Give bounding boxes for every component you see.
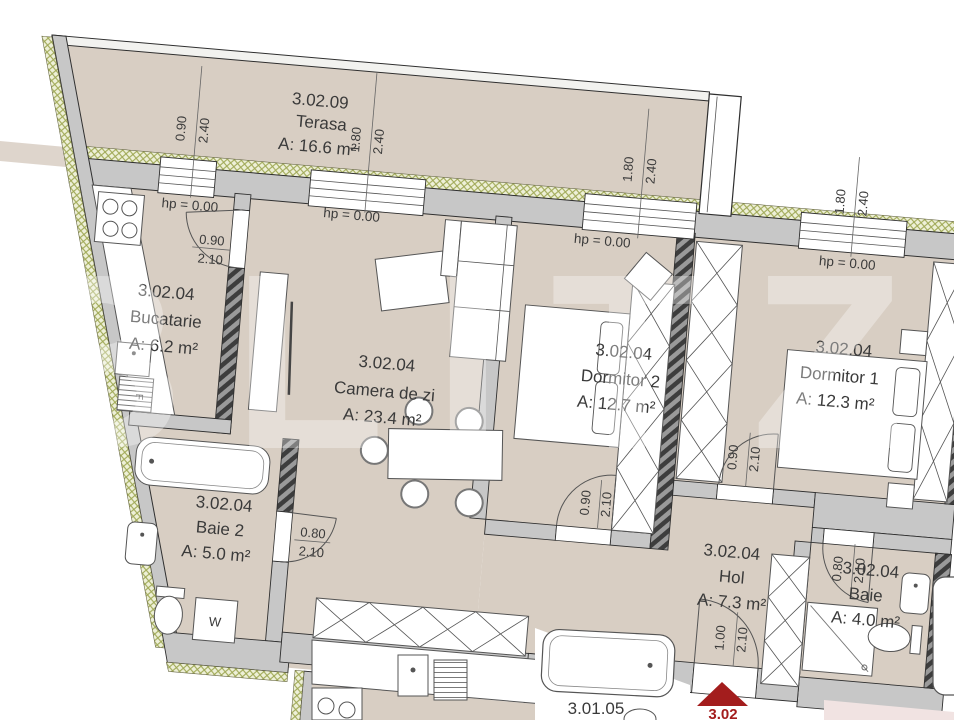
floorplan-page: F <box>0 0 954 720</box>
dim-width: 1.80 <box>831 188 848 215</box>
neighbor-slab-strip <box>0 141 66 167</box>
dim-height: 2.10 <box>298 543 325 560</box>
wall-segment <box>234 193 251 210</box>
sink-baie-icon <box>899 572 930 614</box>
dim-height: 2.40 <box>370 128 387 155</box>
dim-width: 1.00 <box>711 625 728 652</box>
neighbor-stove-icon <box>312 688 362 720</box>
dim-width: 0.90 <box>172 115 189 142</box>
watermark: BLITZ <box>4 222 952 501</box>
neighbor-bathtub-right <box>933 577 954 695</box>
dim-width: 0.80 <box>300 524 327 541</box>
washer-label: W <box>208 614 222 630</box>
floorplan-drawing: F <box>0 0 954 720</box>
neighbor-room-label: 3.01.05 <box>568 699 625 718</box>
svg-text:Hol: Hol <box>718 567 745 588</box>
wall-segment <box>811 527 824 543</box>
dim-height: 2.40 <box>642 158 659 185</box>
sink-baie2-icon <box>125 521 159 565</box>
dim-height: 2.40 <box>854 190 871 217</box>
neighbor-bathtub <box>541 629 676 698</box>
dim-width: 1.80 <box>620 156 637 183</box>
washing-machine: W <box>192 598 237 643</box>
svg-text:Baie: Baie <box>848 584 884 606</box>
entrance-unit-label: 3.02 <box>708 706 737 720</box>
window-kitchen <box>158 157 217 198</box>
dim-height: 2.40 <box>195 117 212 144</box>
dim-height: 2.10 <box>733 627 750 654</box>
